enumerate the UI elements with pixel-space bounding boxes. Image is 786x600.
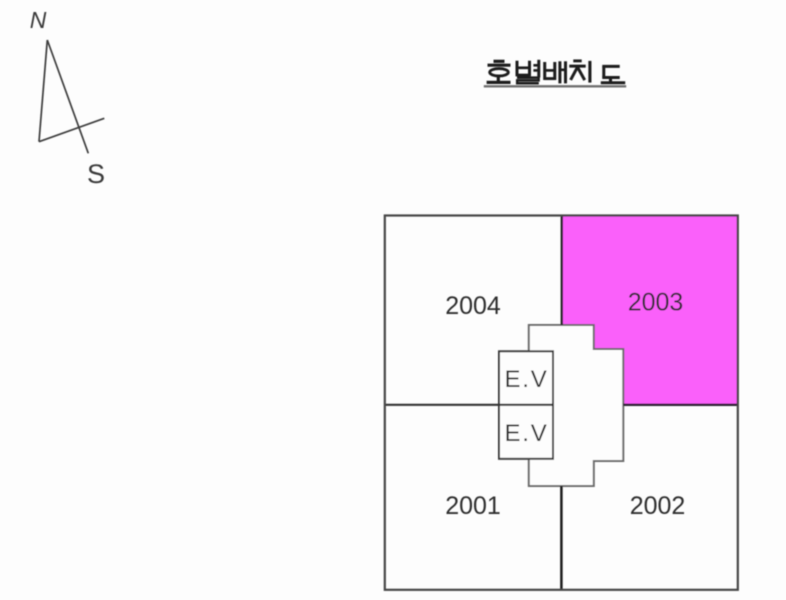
svg-text:2002: 2002 xyxy=(630,492,686,520)
svg-text:E.V: E.V xyxy=(504,366,548,393)
svg-text:2001: 2001 xyxy=(445,492,501,520)
svg-text:2004: 2004 xyxy=(445,292,501,320)
svg-text:E.V: E.V xyxy=(504,420,548,447)
svg-text:2003: 2003 xyxy=(628,289,684,317)
svg-text:S: S xyxy=(87,159,105,189)
svg-text:N: N xyxy=(30,7,47,33)
